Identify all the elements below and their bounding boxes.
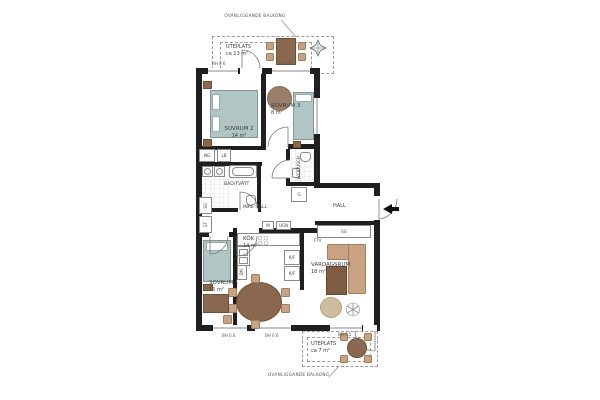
room-label-sovrum3: SOVRUM 3 8 m² — [271, 103, 300, 117]
sill-height-bottom-right: BH 0.5 — [338, 333, 351, 337]
floor-plan: NG LB SG ST G SG M UGN K/F K/F DM — [0, 0, 600, 400]
room-label-sovrum2: SOVRUM 2 14 m² — [216, 126, 262, 140]
sill-height-bottom-middle: BH 0.6 — [265, 334, 278, 338]
terrace-bottom-label: UTEPLATS ca 7 m² — [311, 341, 336, 354]
sovrum2-area: 14 m² — [216, 133, 262, 140]
sovrum3-area: 8 m² — [271, 110, 300, 117]
sovrum1-area: 15 m² — [209, 287, 238, 294]
terrace-top-name: UTEPLATS — [226, 44, 251, 51]
room-label-bad-tvatt: BAD/TVÄTT — [224, 182, 249, 188]
terrace-top-label: UTEPLATS ca 13 m² — [226, 44, 251, 57]
plant-icon — [347, 303, 360, 316]
door-arc-terrace-bottom — [355, 331, 375, 351]
kok-name: KÖK — [243, 236, 258, 243]
sovrum1-name: SOVRUM 1 — [209, 280, 238, 287]
terrace-top-area: ca 13 m² — [226, 51, 251, 58]
door-arc-wc — [272, 160, 290, 178]
balcony-bottom-note: OVANLIGGANDE BALKONG — [268, 373, 329, 377]
entrance-arrow-icon — [383, 204, 399, 214]
room-label-kok: KÖK 14 m² — [243, 236, 258, 250]
hob-burners — [258, 236, 268, 245]
leader-line-top — [281, 20, 296, 37]
room-label-wc-dusch: WC/DUSCH — [296, 156, 301, 180]
kok-area: 14 m² — [243, 243, 258, 250]
room-label-sovrum1: SOVRUM 1 15 m² — [209, 280, 238, 294]
room-label-vardagsrum: VARDAGSRUM 18 m² — [311, 262, 350, 276]
sill-height-bottom-left: BH 0.6 — [222, 334, 235, 338]
inre-hall-name: INRE HALL — [243, 205, 267, 211]
compass-icon — [310, 40, 326, 56]
door-arc-sovrum3 — [268, 127, 288, 147]
room-label-hall: HALL — [333, 203, 346, 210]
vardagsrum-name: VARDAGSRUM — [311, 262, 350, 269]
sovrum2-name: SOVRUM 2 — [216, 126, 262, 133]
wc-dusch-name: WC/DUSCH — [296, 156, 301, 180]
room-label-inre-hall: INRE HALL — [243, 205, 267, 211]
vardagsrum-area: 18 m² — [311, 269, 350, 276]
plan-linework — [0, 0, 600, 400]
sovrum3-name: SOVRUM 3 — [271, 103, 300, 110]
terrace-bottom-area: ca 7 m² — [311, 348, 336, 355]
bad-tvatt-name: BAD/TVÄTT — [224, 182, 249, 188]
hall-name: HALL — [333, 203, 346, 210]
terrace-bottom-name: UTEPLATS — [311, 341, 336, 348]
ftv-label: FTV — [314, 239, 321, 243]
leader-line-bottom — [329, 366, 339, 377]
balcony-top-note: OVANLIGGANDE BALKONG — [210, 14, 300, 18]
door-arc-sovrum1 — [210, 236, 228, 254]
sill-height-top-left: BH 0.6 — [212, 62, 225, 66]
sill-height-top-right: BH 0.6 — [278, 62, 291, 66]
